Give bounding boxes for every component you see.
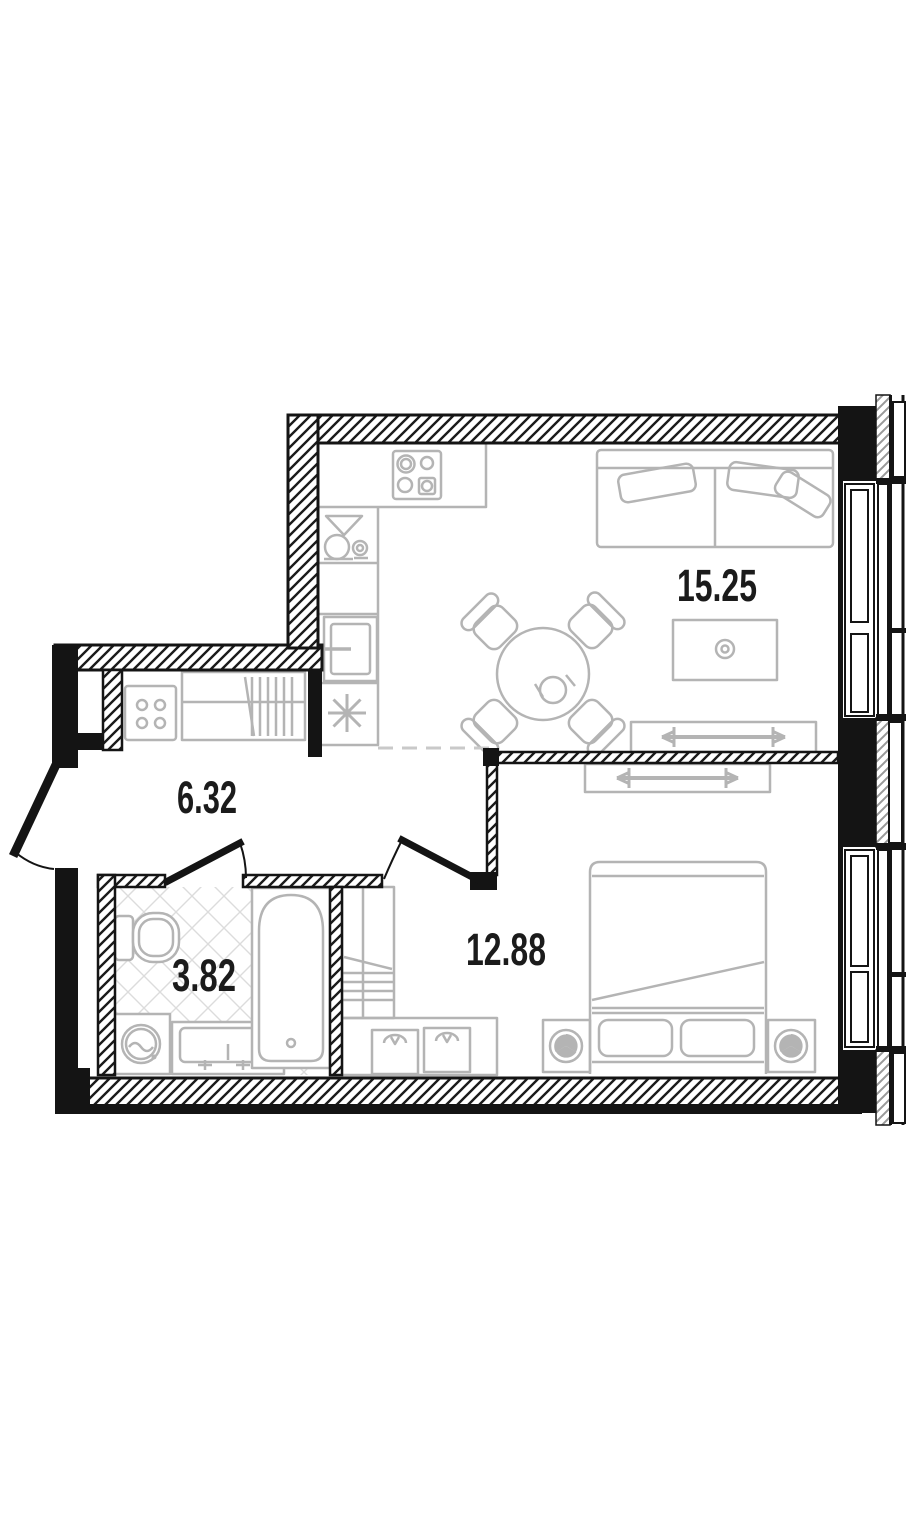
sliding-wardrobe-bedroom-icon	[585, 764, 770, 792]
bathroom-door-icon	[168, 843, 246, 881]
kitchen-counter	[318, 443, 486, 745]
floor-plan-page: 15.25 6.32 3.82 12.88	[0, 0, 906, 1518]
room-area-label-bedroom: 12.88	[466, 924, 546, 975]
hallway-cabinet-icon	[125, 686, 176, 740]
refrigerator-snowflake-icon	[328, 694, 366, 732]
nightstand-fan-icon-left	[543, 1020, 590, 1072]
sofa-icon	[597, 450, 833, 547]
coffee-table-icon	[673, 620, 777, 680]
sliding-wardrobe-living-icon	[631, 722, 816, 752]
cooktop-4-burner-icon	[393, 451, 441, 499]
floor-plan-drawing: 15.25 6.32 3.82 12.88	[0, 0, 906, 1518]
doors	[15, 769, 476, 881]
room-area-label-kitchen-living: 15.25	[677, 560, 757, 611]
dresser-baskets-icon	[342, 1018, 497, 1075]
oven-icon	[324, 617, 377, 681]
entrance-door-icon	[15, 769, 54, 869]
bedroom-door-icon	[384, 840, 476, 879]
room-area-label-bathroom: 3.82	[172, 950, 236, 1001]
room-area-label-hallway: 6.32	[177, 772, 237, 823]
bathtub-icon	[252, 888, 330, 1068]
double-bed-icon	[590, 862, 766, 1074]
window-bedroom-icon	[845, 850, 888, 1047]
hallway-open-wardrobe-icon	[182, 672, 305, 740]
shelving-wardrobe-icon	[342, 887, 394, 1018]
dining-table-4-chairs-icon	[459, 590, 628, 759]
nightstand-fan-icon-right	[768, 1020, 815, 1072]
washing-machine-icon	[113, 1014, 170, 1074]
kitchen-sink-icon	[324, 516, 368, 559]
window-living-icon	[845, 484, 888, 716]
toilet-icon	[115, 913, 179, 962]
